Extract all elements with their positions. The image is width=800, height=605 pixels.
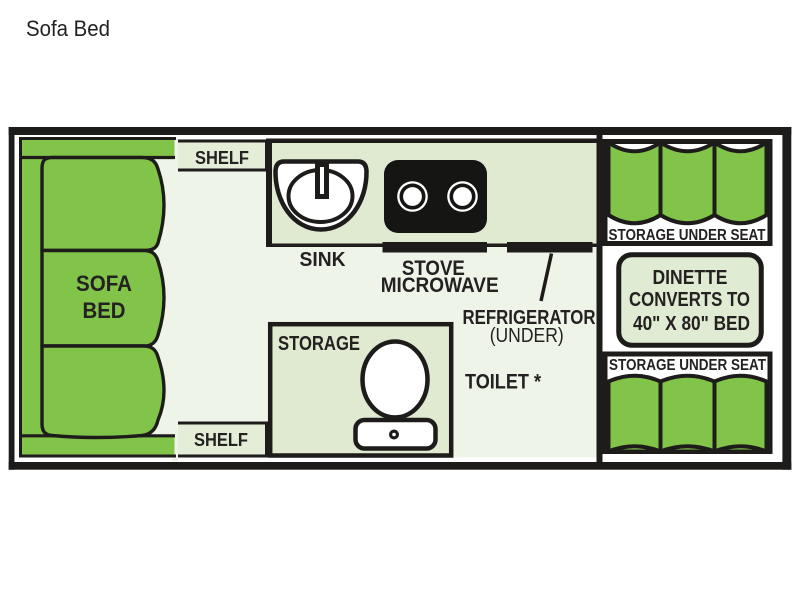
svg-text:SINK: SINK	[300, 248, 346, 271]
svg-text:(UNDER): (UNDER)	[490, 324, 564, 347]
svg-text:SOFA: SOFA	[76, 271, 132, 296]
svg-text:40" X 80" BED: 40" X 80" BED	[633, 312, 750, 335]
svg-text:TOILET *: TOILET *	[465, 371, 542, 394]
svg-text:STORAGE: STORAGE	[278, 332, 360, 355]
svg-text:SHELF: SHELF	[194, 429, 248, 450]
svg-text:SHELF: SHELF	[195, 147, 249, 168]
svg-text:Sofa Bed: Sofa Bed	[26, 16, 110, 41]
svg-text:MICROWAVE: MICROWAVE	[381, 274, 499, 297]
svg-text:CONVERTS TO: CONVERTS TO	[629, 288, 750, 311]
svg-text:STORAGE UNDER SEAT: STORAGE UNDER SEAT	[609, 227, 766, 244]
svg-text:BED: BED	[83, 298, 126, 323]
svg-text:STORAGE UNDER SEAT: STORAGE UNDER SEAT	[609, 357, 766, 374]
svg-text:DINETTE: DINETTE	[653, 266, 728, 289]
